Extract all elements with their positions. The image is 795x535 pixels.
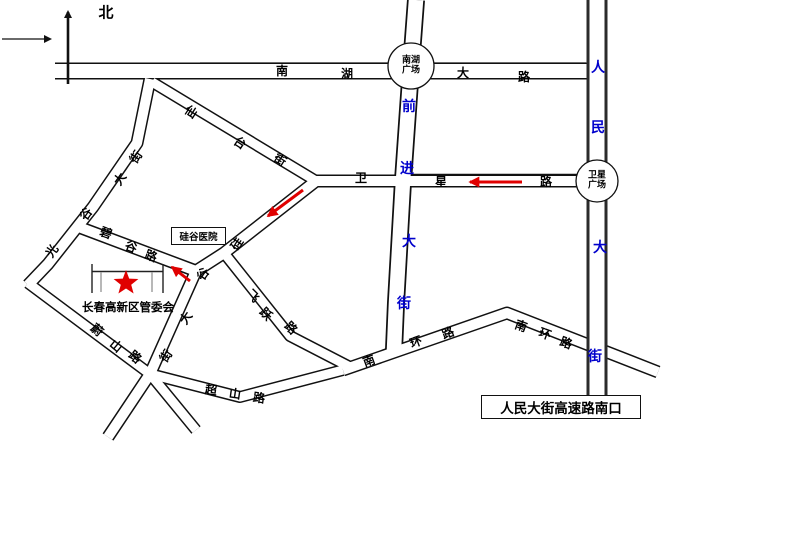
road-label-renmin-dajie: 民: [591, 121, 605, 135]
road-label-qianjin-dajie: 大: [402, 235, 416, 249]
nanhu-plaza-label: 南湖 广场: [402, 56, 420, 77]
road-label-nanhu-dalu: 湖: [341, 68, 353, 80]
map-canvas: 北 南 湖 大 路 人 民 大 街 前 进 大 街 卫 星 路 仙 台 街 街 …: [0, 0, 795, 535]
map-drawing: [0, 0, 795, 535]
road-label-weixing-lu: 星: [435, 176, 447, 188]
road-label-nanhu-dalu: 南: [276, 65, 288, 77]
weixing-plaza-line2: 广场: [588, 181, 606, 191]
nanhu-plaza-line1: 南湖: [402, 56, 420, 66]
guigu-hospital-box: 硅谷医院: [171, 227, 226, 245]
committee-label: 长春高新区管委会: [82, 299, 174, 315]
road-label-weixing-lu: 卫: [355, 172, 367, 184]
road-label-renmin-dajie: 人: [591, 61, 605, 75]
road-label-nanhu-dalu: 路: [518, 71, 530, 83]
guigu-hospital-label: 硅谷医院: [179, 229, 217, 243]
compass-north-label: 北: [98, 2, 113, 23]
road-label-chaoshan-lu: 路: [252, 391, 266, 405]
highway-south-exit-box: 人民大街高速路南口: [481, 395, 641, 419]
road-label-qianjin-dajie: 前: [402, 100, 416, 114]
road-label-qianjin-dajie: 街: [397, 297, 411, 311]
destination-star-icon: [114, 270, 139, 294]
road-label-renmin-dajie: 大: [593, 241, 607, 255]
weixing-plaza-line1: 卫星: [588, 171, 606, 181]
highway-south-exit-label: 人民大街高速路南口: [500, 397, 622, 417]
road-label-qianjin-dajie: 进: [400, 162, 414, 176]
road-label-chaoshan-lu: 超: [204, 383, 218, 397]
road-label-nanhu-dalu: 大: [457, 67, 469, 79]
nanhu-plaza-line2: 广场: [402, 66, 420, 76]
road-label-weixing-lu: 路: [540, 176, 552, 188]
weixing-plaza-label: 卫星 广场: [588, 171, 606, 192]
road-label-renmin-dajie: 街: [588, 350, 602, 364]
road-label-chaoshan-lu: 山: [228, 387, 242, 401]
